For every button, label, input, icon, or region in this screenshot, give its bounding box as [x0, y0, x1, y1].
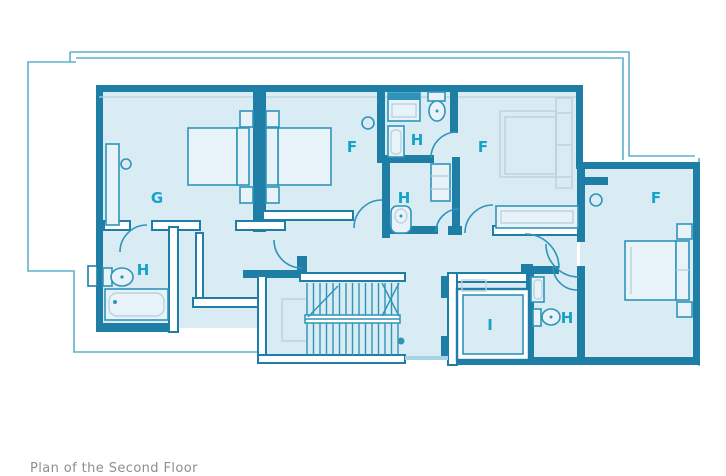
clipped-caption: Plan of the Second Floor	[30, 461, 198, 476]
label-bedroom-f-wing: F	[651, 189, 661, 207]
label-bathroom-left: H	[137, 261, 150, 279]
nightstand	[677, 302, 692, 317]
bed-f-left-headboard	[266, 128, 278, 185]
nightstand	[240, 111, 253, 127]
label-bathroom-right: H	[561, 309, 574, 327]
terrace-threshold	[405, 356, 448, 360]
nightstand	[266, 187, 279, 203]
wardrobe-g	[106, 144, 119, 225]
nightstand	[266, 111, 279, 127]
bed-g-headboard	[237, 128, 249, 185]
floor-plan: G F H F H H F I H	[0, 0, 726, 470]
toilet	[391, 206, 411, 233]
toilet-tank	[533, 309, 541, 326]
label-bedroom-f-left: F	[347, 138, 357, 156]
label-bedroom-g: G	[151, 189, 163, 207]
wardrobe	[496, 206, 578, 228]
bed-f-left	[278, 128, 331, 185]
label-bathroom-mid: H	[398, 189, 411, 207]
bed-wing	[625, 241, 676, 300]
window	[88, 266, 97, 286]
label-bathroom-top: H	[411, 131, 424, 149]
bed-g	[188, 128, 237, 185]
stair-newel-dot	[398, 338, 405, 345]
tub-faucet	[113, 300, 117, 304]
label-bedroom-f-center: F	[478, 138, 488, 156]
toilet-tank	[428, 92, 445, 101]
nightstand	[677, 224, 692, 239]
nightstand	[240, 187, 253, 203]
shower-column	[431, 164, 450, 201]
room-i-structure	[457, 280, 529, 360]
label-room-i: I	[487, 316, 493, 334]
